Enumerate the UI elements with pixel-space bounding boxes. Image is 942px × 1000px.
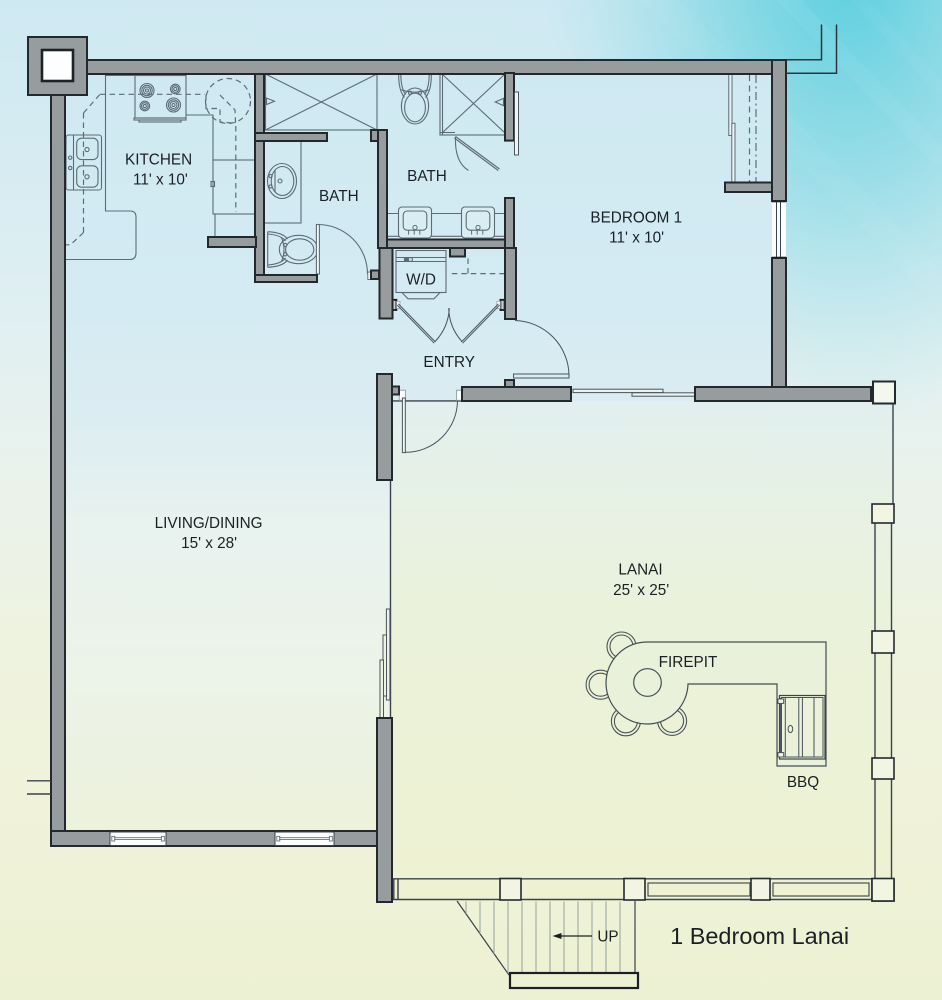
svg-text:1 Bedroom Lanai: 1 Bedroom Lanai <box>670 923 849 949</box>
svg-text:W/D: W/D <box>406 271 436 288</box>
svg-text:UP: UP <box>597 929 618 946</box>
svg-text:BBQ: BBQ <box>787 774 819 791</box>
svg-text:11' x 10': 11' x 10' <box>609 229 664 246</box>
svg-text:BATH: BATH <box>407 168 447 185</box>
svg-text:25' x 25': 25' x 25' <box>613 582 669 599</box>
svg-text:BATH: BATH <box>319 188 359 205</box>
svg-text:KITCHEN: KITCHEN <box>125 151 192 168</box>
svg-text:LANAI: LANAI <box>618 562 662 579</box>
svg-text:FIREPIT: FIREPIT <box>659 654 718 671</box>
svg-text:15' x 28': 15' x 28' <box>181 535 237 552</box>
svg-text:LIVING/DINING: LIVING/DINING <box>155 515 263 532</box>
svg-text:ENTRY: ENTRY <box>423 354 475 371</box>
svg-text:11' x 10': 11' x 10' <box>133 171 188 188</box>
svg-text:BEDROOM 1: BEDROOM 1 <box>590 210 682 227</box>
